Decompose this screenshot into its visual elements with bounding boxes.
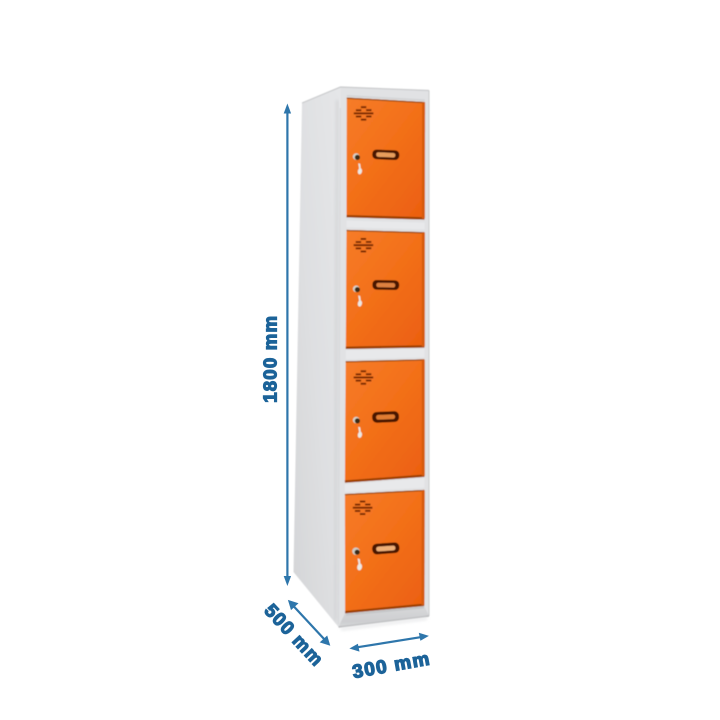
svg-text:1800 mm: 1800 mm: [260, 315, 281, 403]
svg-text:500 mm: 500 mm: [260, 600, 328, 671]
svg-text:300 mm: 300 mm: [351, 648, 432, 683]
